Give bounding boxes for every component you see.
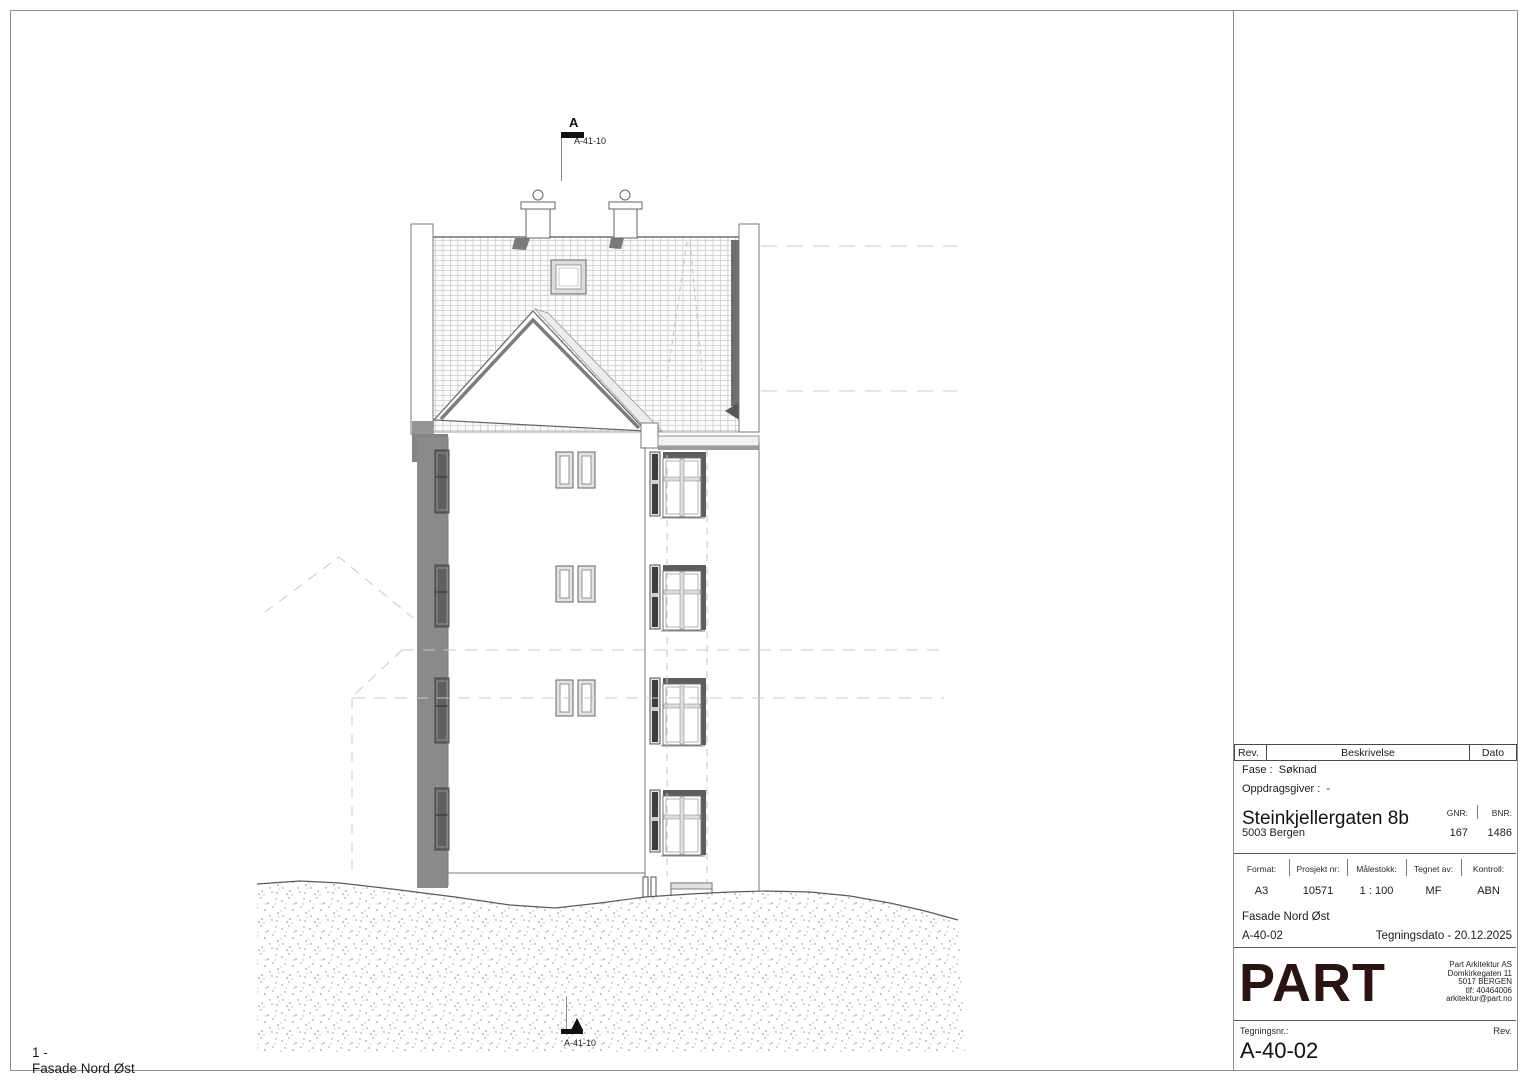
titleblock-rule	[1234, 1020, 1516, 1021]
titleblock-rule	[1234, 853, 1516, 854]
tegnetav-value: MF	[1406, 885, 1461, 897]
malestokk-label: Målestokk:	[1347, 864, 1406, 874]
oppdragsgiver-row: Oppdragsgiver : -	[1242, 783, 1330, 795]
format-label: Format:	[1234, 864, 1289, 874]
kontroll-label: Kontroll:	[1461, 864, 1516, 874]
info-divider	[1461, 859, 1462, 876]
section-arrow-icon	[571, 1018, 583, 1030]
section-ref: A-41-10	[564, 1038, 596, 1048]
company-email: arkitektur@part.no	[1392, 995, 1512, 1004]
neighbour-outline-dashed	[265, 557, 413, 876]
view-title: Fasade Nord Øst	[32, 1061, 135, 1076]
section-letter: A	[569, 115, 578, 130]
company-info: Part Arkitektur AS Domkirkegaten 11 5017…	[1392, 961, 1512, 1004]
company-logo: PART	[1239, 958, 1386, 1008]
cornice	[658, 436, 759, 450]
titleblock-divider	[1233, 10, 1234, 1070]
view-number: 1 -	[32, 1045, 48, 1060]
oppdragsgiver-value: -	[1326, 783, 1330, 795]
section-line	[561, 138, 562, 181]
tegningsnr-label: Tegningsnr.:	[1240, 1026, 1289, 1036]
prosjektnr-label: Prosjekt nr:	[1289, 864, 1347, 874]
prosjektnr-value: 10571	[1289, 885, 1347, 897]
info-divider	[1406, 859, 1407, 876]
fase-label: Fase :	[1242, 764, 1273, 776]
tegnetav-label: Tegnet av:	[1406, 864, 1461, 874]
side-wall-shadow	[412, 421, 449, 888]
fase-value: Søknad	[1279, 764, 1317, 776]
info-divider	[1347, 859, 1348, 876]
drawing-code: A-40-02	[1242, 930, 1283, 942]
tegningsnr-value: A-40-02	[1240, 1038, 1318, 1064]
project-address: 5003 Bergen	[1242, 827, 1305, 839]
fase-row: Fase : Søknad	[1242, 764, 1317, 776]
titleblock-rule	[1234, 947, 1516, 948]
facade-wall	[448, 437, 760, 894]
dato-header: Dato	[1469, 745, 1516, 760]
malestokk-value: 1 : 100	[1347, 885, 1406, 897]
gnr-bnr-divider	[1477, 805, 1478, 819]
bnr-value: 1486	[1452, 827, 1512, 839]
section-line	[566, 996, 567, 1029]
section-marker-top: A A-41-10	[555, 112, 625, 182]
section-marker-bottom: A-41-10	[550, 993, 630, 1055]
oppdragsgiver-label: Oppdragsgiver :	[1242, 783, 1320, 795]
bnr-label: BNR:	[1452, 808, 1512, 818]
chimneys	[521, 190, 642, 238]
drawing-sheet: A A-41-10 A-41-10 1 - Fasade Nord Øst Sk…	[0, 0, 1528, 1080]
beskrivelse-header: Beskrivelse	[1267, 745, 1469, 760]
revision-table: Rev. Beskrivelse Dato	[1234, 744, 1517, 761]
footer-rev-label: Rev.	[1432, 1026, 1512, 1037]
section-ref: A-41-10	[574, 136, 606, 146]
kontroll-value: ABN	[1461, 885, 1516, 897]
view-label: 1 - Fasade Nord Øst Skala 1 : 100	[17, 1029, 135, 1080]
drawing-title: Fasade Nord Øst	[1242, 911, 1330, 923]
roof-skylight	[551, 260, 586, 294]
rev-header: Rev.	[1235, 745, 1267, 760]
info-divider	[1289, 859, 1290, 876]
drawing-date: Tegningsdato - 20.12.2025	[1332, 930, 1512, 942]
format-value: A3	[1234, 885, 1289, 897]
